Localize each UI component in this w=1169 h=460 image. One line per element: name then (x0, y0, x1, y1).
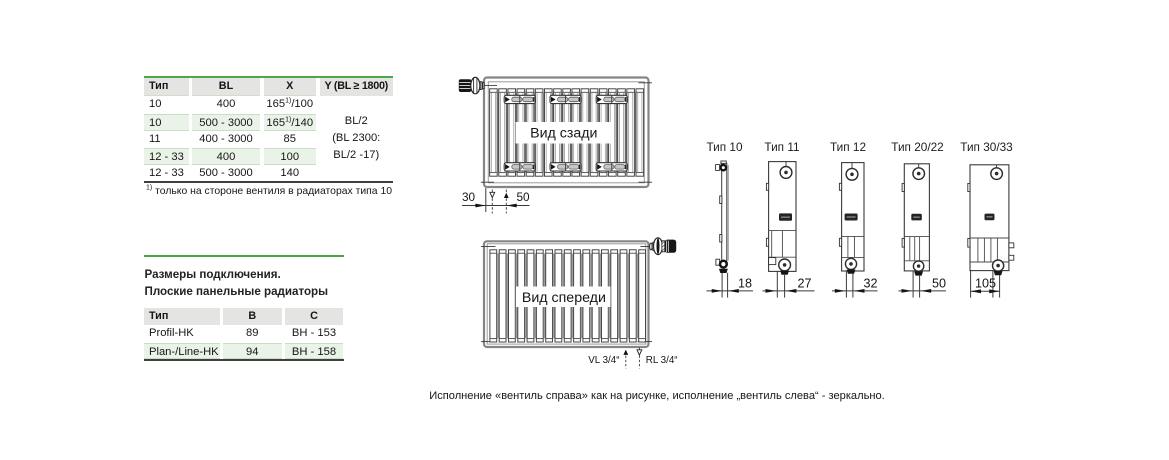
svg-text:18: 18 (738, 276, 752, 290)
svg-text:Тип 12: Тип 12 (830, 140, 866, 154)
svg-text:30: 30 (462, 190, 476, 204)
svg-text:Тип 30/33: Тип 30/33 (960, 140, 1013, 154)
svg-text:Тип 10: Тип 10 (706, 140, 743, 154)
svg-text:Вид спереди: Вид спереди (522, 290, 606, 306)
svg-text:Тип 11: Тип 11 (764, 140, 799, 154)
svg-text:32: 32 (863, 276, 877, 290)
svg-text:Тип 20/22: Тип 20/22 (891, 140, 943, 154)
svg-text:RL 3/4“: RL 3/4“ (646, 355, 678, 366)
svg-text:50: 50 (516, 190, 530, 204)
svg-text:105: 105 (975, 276, 996, 290)
svg-text:VL 3/4“: VL 3/4“ (588, 355, 619, 366)
svg-text:27: 27 (797, 276, 811, 290)
svg-text:Вид сзади: Вид сзади (530, 126, 597, 142)
svg-text:50: 50 (932, 276, 946, 290)
